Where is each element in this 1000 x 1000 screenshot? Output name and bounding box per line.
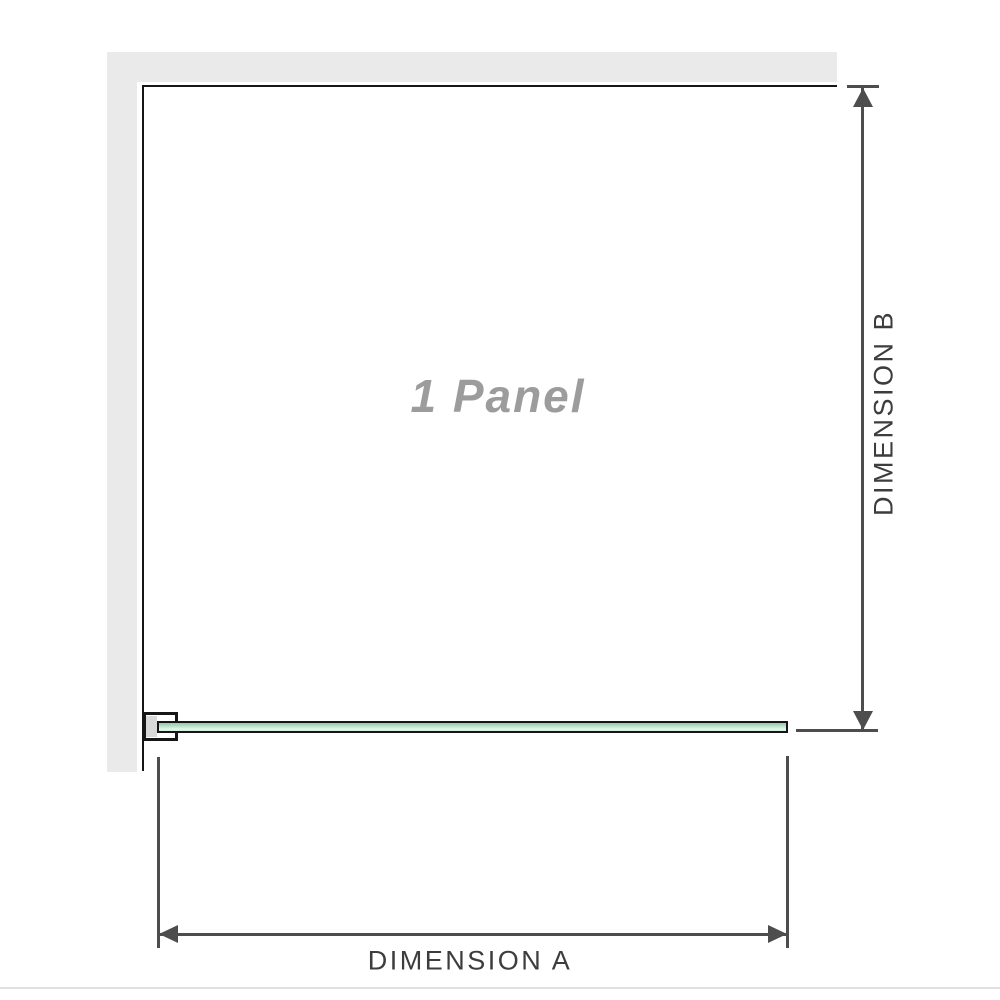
bottom-rule <box>0 987 1000 989</box>
diagram-canvas: 1 Panel DIMENSION B DIMENSION A <box>0 0 1000 1000</box>
wall-left <box>107 52 137 772</box>
dimension-b-arrow-up-icon <box>853 88 873 107</box>
wall-top-inner-edge <box>143 85 837 87</box>
panel-count-label: 1 Panel <box>410 369 585 423</box>
dimension-b-arrow-down-icon <box>853 711 873 730</box>
dimension-a-right-extension-line <box>786 756 789 948</box>
dimension-a-line <box>160 933 786 936</box>
dimension-a-label: DIMENSION A <box>368 946 573 977</box>
bracket-pad <box>146 716 157 737</box>
dimension-a-arrow-right-icon <box>768 925 787 943</box>
dimension-a-left-extension-line <box>157 757 160 948</box>
glass-panel <box>157 721 788 733</box>
wall-top <box>107 52 837 82</box>
dimension-b-line <box>861 88 864 730</box>
dimension-a-arrow-left-icon <box>159 925 178 943</box>
dimension-b-label: DIMENSION B <box>869 310 900 516</box>
wall-left-inner-edge <box>142 85 144 771</box>
